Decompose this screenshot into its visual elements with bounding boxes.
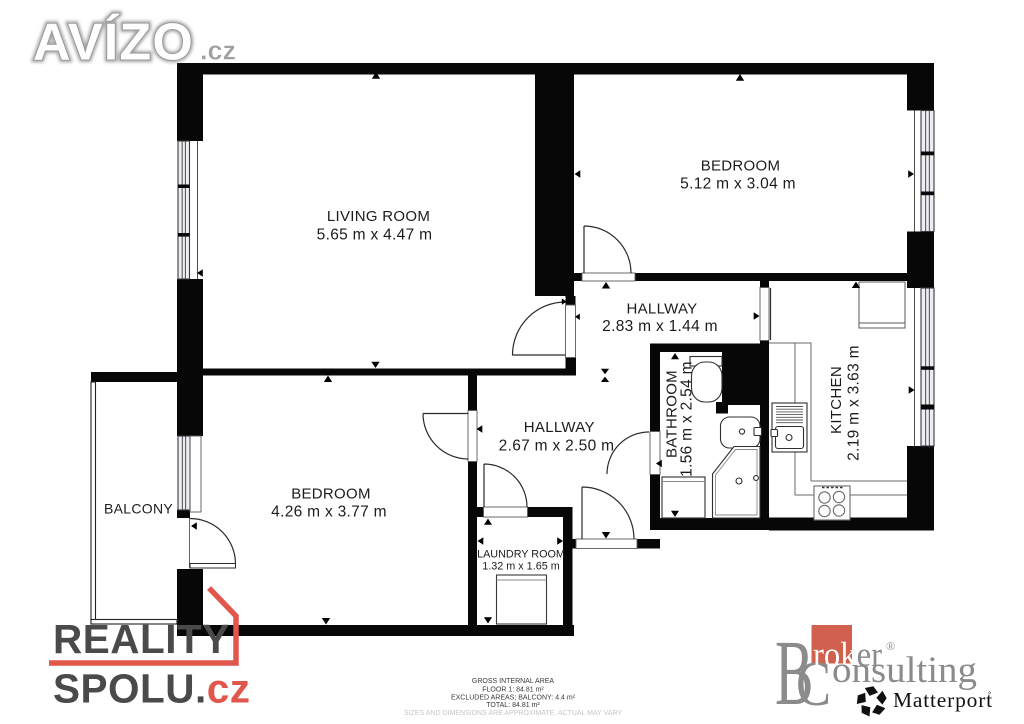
svg-text:2.67 m x 2.50 m: 2.67 m x 2.50 m: [499, 438, 615, 455]
svg-text:AVÍZO: AVÍZO: [33, 14, 194, 72]
svg-text:GROSS INTERNAL AREA: GROSS INTERNAL AREA: [472, 678, 555, 685]
svg-text:SPOLU.cz: SPOLU.cz: [53, 666, 251, 712]
svg-text:5.65 m x 4.47 m: 5.65 m x 4.47 m: [317, 227, 433, 244]
svg-text:onsulting: onsulting: [832, 650, 977, 691]
svg-text:2.19 m x 3.63 m: 2.19 m x 3.63 m: [846, 345, 863, 461]
svg-text:HALLWAY: HALLWAY: [626, 301, 697, 318]
svg-text:Matterport: Matterport: [893, 688, 993, 712]
svg-text:BALCONY: BALCONY: [104, 501, 173, 517]
svg-text:1.56 m x 2.54 m: 1.56 m x 2.54 m: [679, 361, 696, 477]
svg-text:HALLWAY: HALLWAY: [524, 419, 595, 436]
svg-text:5.12 m x 3.04 m: 5.12 m x 3.04 m: [680, 176, 796, 193]
svg-text:°: °: [988, 690, 991, 699]
svg-text:1.32 m x 1.65 m: 1.32 m x 1.65 m: [482, 561, 559, 573]
svg-text:LIVING ROOM: LIVING ROOM: [327, 208, 430, 225]
svg-text:TOTAL: 84.81 m²: TOTAL: 84.81 m²: [486, 702, 540, 709]
svg-text:2.83 m x 1.44 m: 2.83 m x 1.44 m: [602, 318, 718, 335]
svg-text:REALITY: REALITY: [53, 616, 230, 662]
svg-text:LAUNDRY ROOM: LAUNDRY ROOM: [477, 549, 565, 561]
svg-text:KITCHEN: KITCHEN: [828, 366, 845, 434]
svg-text:EXCLUDED AREAS; BALCONY: 4.4 m: EXCLUDED AREAS; BALCONY: 4.4 m²: [451, 695, 576, 702]
svg-text:BEDROOM: BEDROOM: [291, 486, 371, 503]
svg-text:FLOOR 1: 84.81 m²: FLOOR 1: 84.81 m²: [482, 686, 544, 693]
svg-text:4.26 m x 3.77 m: 4.26 m x 3.77 m: [271, 504, 387, 521]
svg-text:SIZES AND DIMENSIONS ARE APPRO: SIZES AND DIMENSIONS ARE APPROXIMATE, AC…: [404, 710, 622, 717]
svg-text:BEDROOM: BEDROOM: [701, 158, 781, 175]
svg-text:.cz: .cz: [200, 36, 236, 66]
